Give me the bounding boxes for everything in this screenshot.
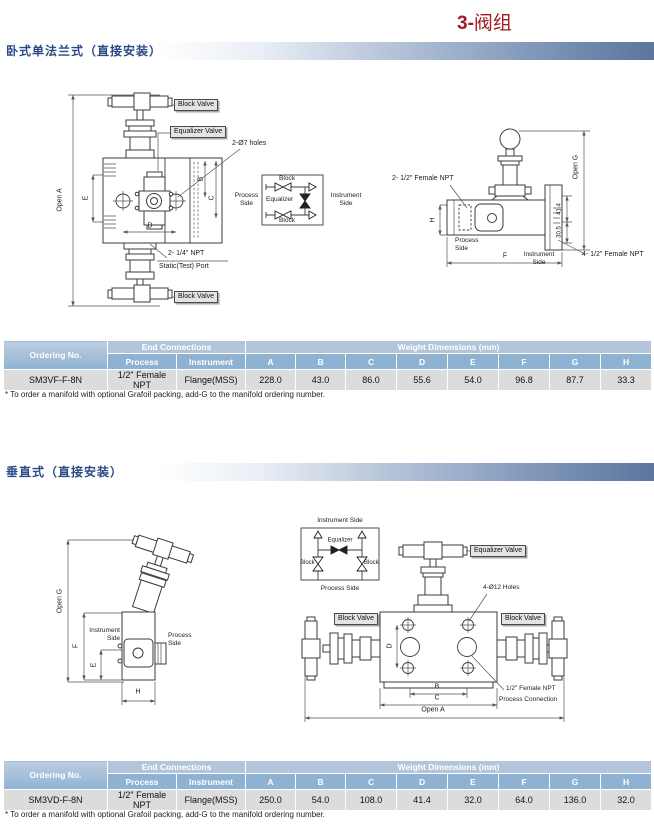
s1-right-instrument-side-label: Instrument Side: [518, 251, 560, 267]
s1-schematic-block-top-label: Block: [279, 175, 295, 183]
cell-value: 54.0: [296, 790, 346, 811]
th-dim: B: [296, 774, 346, 790]
s2-flow-schematic: [301, 528, 379, 580]
th-dim: D: [397, 774, 448, 790]
th-instrument: Instrument: [177, 354, 246, 370]
th-process: Process: [108, 354, 177, 370]
cell-value: 41.4: [397, 790, 448, 811]
cell-instrument: Flange(MSS): [177, 370, 246, 391]
th-dim: D: [397, 354, 448, 370]
cell-ordering-no: SM3VF-F-8N: [4, 370, 108, 391]
th-dim: E: [448, 354, 499, 370]
s1-dim-c-label: C: [209, 195, 218, 200]
s2-left-instrument-side-label: Instrument Side: [78, 627, 120, 643]
s2-dim-open-g-label: Open G: [57, 589, 66, 614]
th-dim: G: [550, 774, 601, 790]
page-title: 3-阀组: [457, 8, 512, 35]
footnote-2: * To order a manifold with optional Graf…: [5, 810, 325, 819]
th-end-connections: End Connections: [108, 341, 246, 354]
s1-block-valve-bottom-tag: Block Valve: [174, 291, 218, 303]
s1-block-valve-top-tag: Block Valve: [174, 99, 218, 111]
th-dim: F: [499, 774, 550, 790]
s1-dim-305-label: 30.5: [556, 226, 564, 238]
s2-schematic-equalizer-label: Equalizer: [326, 537, 353, 545]
s1-dim-b-label: B: [198, 177, 207, 182]
s2-schematic-block-right-label: Block: [364, 560, 379, 568]
section-2-heading-bar: 垂直式（直接安装）: [0, 463, 654, 481]
table-row: SM3VF-F-8N 1/2" Female NPT Flange(MSS) 2…: [4, 370, 652, 391]
s1-dim-e-label: E: [83, 196, 92, 201]
cell-value: 54.0: [448, 370, 499, 391]
th-dim: C: [346, 774, 397, 790]
page-title-text: 阀组: [474, 13, 512, 34]
s1-dim-open-g-label: Open G: [573, 155, 582, 180]
s1-schematic-equalizer-label: Equalizer: [266, 196, 293, 204]
s1-dim-open-a-label: Open A: [57, 188, 66, 211]
spec-table-1: Ordering No. End Connections Weight Dime…: [3, 340, 652, 391]
th-weight-dimensions: Weight Dimensions (mm): [246, 341, 652, 354]
s1-schematic-instrument-side-label: Instrument Side: [329, 192, 363, 208]
s2-dim-e-label: E: [91, 663, 100, 668]
s1-equalizer-valve-tag: Equalizer Valve: [170, 126, 226, 138]
s2-dim-open-a-label: Open A: [421, 707, 444, 716]
s2-dim-b-label: B: [435, 684, 440, 693]
cell-value: 136.0: [550, 790, 601, 811]
s1-npt-4x-note: 4- 1/2" Female NPT: [582, 251, 644, 260]
s2-left-side-view-drawing: [68, 531, 195, 705]
th-dim: B: [296, 354, 346, 370]
th-ordering-no: Ordering No.: [4, 341, 108, 370]
s2-block-valve-right-tag: Block Valve: [501, 613, 545, 625]
s1-dim-f-label: F: [501, 253, 509, 262]
cell-value: 108.0: [346, 790, 397, 811]
s2-block-valve-left-tag: Block Valve: [334, 613, 378, 625]
s1-holes-note: 2-Ø7 holes: [232, 140, 266, 149]
th-instrument: Instrument: [177, 774, 246, 790]
th-dim: E: [448, 774, 499, 790]
s2-dim-d-label: D: [387, 643, 396, 648]
s1-dim-d-label: D: [147, 223, 152, 232]
th-process: Process: [108, 774, 177, 790]
th-dim: A: [246, 354, 296, 370]
cell-value: 250.0: [246, 790, 296, 811]
s2-dim-h-label: H: [135, 689, 140, 698]
spec-table-2: Ordering No. End Connections Weight Dime…: [3, 760, 652, 811]
s2-schematic-instrument-side-label: Instrument Side: [317, 517, 363, 525]
cell-value: 33.3: [601, 370, 652, 391]
cell-value: 96.8: [499, 370, 550, 391]
cell-value: 86.0: [346, 370, 397, 391]
s2-schematic-process-side-label: Process Side: [321, 585, 359, 593]
s2-holes-note: 4-Ø12 Holes: [483, 584, 520, 592]
cell-ordering-no: SM3VD-F-8N: [4, 790, 108, 811]
s1-npt-2x-note: 2- 1/2" Female NPT: [392, 175, 454, 184]
datasheet-page: 3-阀组 卧式单法兰式（直接安装） Open A E B C D Block V…: [0, 0, 654, 826]
th-ordering-no: Ordering No.: [4, 761, 108, 790]
cell-value: 32.0: [601, 790, 652, 811]
s2-schematic-block-left-label: Block: [300, 560, 315, 568]
cell-value: 43.0: [296, 370, 346, 391]
s1-right-process-side-label: Process Side: [455, 237, 483, 253]
footnote-1: * To order a manifold with optional Graf…: [5, 390, 325, 399]
th-dim: H: [601, 354, 652, 370]
page-title-number: 3-: [457, 13, 474, 34]
s2-equalizer-valve-tag: Equalizer Valve: [470, 545, 526, 557]
s1-dim-h-label: H: [430, 217, 439, 222]
cell-process: 1/2" Female NPT: [108, 370, 177, 391]
cell-value: 87.7: [550, 370, 601, 391]
s2-dim-f-label: F: [73, 644, 82, 648]
th-dim: F: [499, 354, 550, 370]
th-weight-dimensions: Weight Dimensions (mm): [246, 761, 652, 774]
section-1-heading: 卧式单法兰式（直接安装）: [6, 42, 162, 60]
cell-value: 228.0: [246, 370, 296, 391]
s1-dim-414-label: 41.4: [556, 203, 564, 215]
cell-value: 32.0: [448, 790, 499, 811]
th-dim: G: [550, 354, 601, 370]
th-dim: A: [246, 774, 296, 790]
s2-left-process-side-label: Process Side: [168, 632, 196, 648]
section-2-heading: 垂直式（直接安装）: [6, 463, 123, 481]
th-end-connections: End Connections: [108, 761, 246, 774]
table-row: SM3VD-F-8N 1/2" Female NPT Flange(MSS) 2…: [4, 790, 652, 811]
th-dim: H: [601, 774, 652, 790]
s2-npt-note-line2: Process Connection: [499, 696, 557, 704]
s1-npt-note-line1: 2- 1/4" NPT: [168, 250, 204, 259]
th-dim: C: [346, 354, 397, 370]
s1-schematic-block-bottom-label: Block: [279, 217, 295, 225]
cell-process: 1/2" Female NPT: [108, 790, 177, 811]
section-1-heading-bar: 卧式单法兰式（直接安装）: [0, 42, 654, 60]
s1-schematic-process-side-label: Process Side: [233, 192, 260, 208]
cell-value: 55.6: [397, 370, 448, 391]
cell-value: 64.0: [499, 790, 550, 811]
cell-instrument: Flange(MSS): [177, 790, 246, 811]
s2-dim-c-label: C: [434, 695, 439, 704]
s1-npt-note-line2: Static(Test) Port: [159, 263, 209, 272]
s2-npt-note-line1: 1/2" Female NPT: [506, 685, 556, 693]
